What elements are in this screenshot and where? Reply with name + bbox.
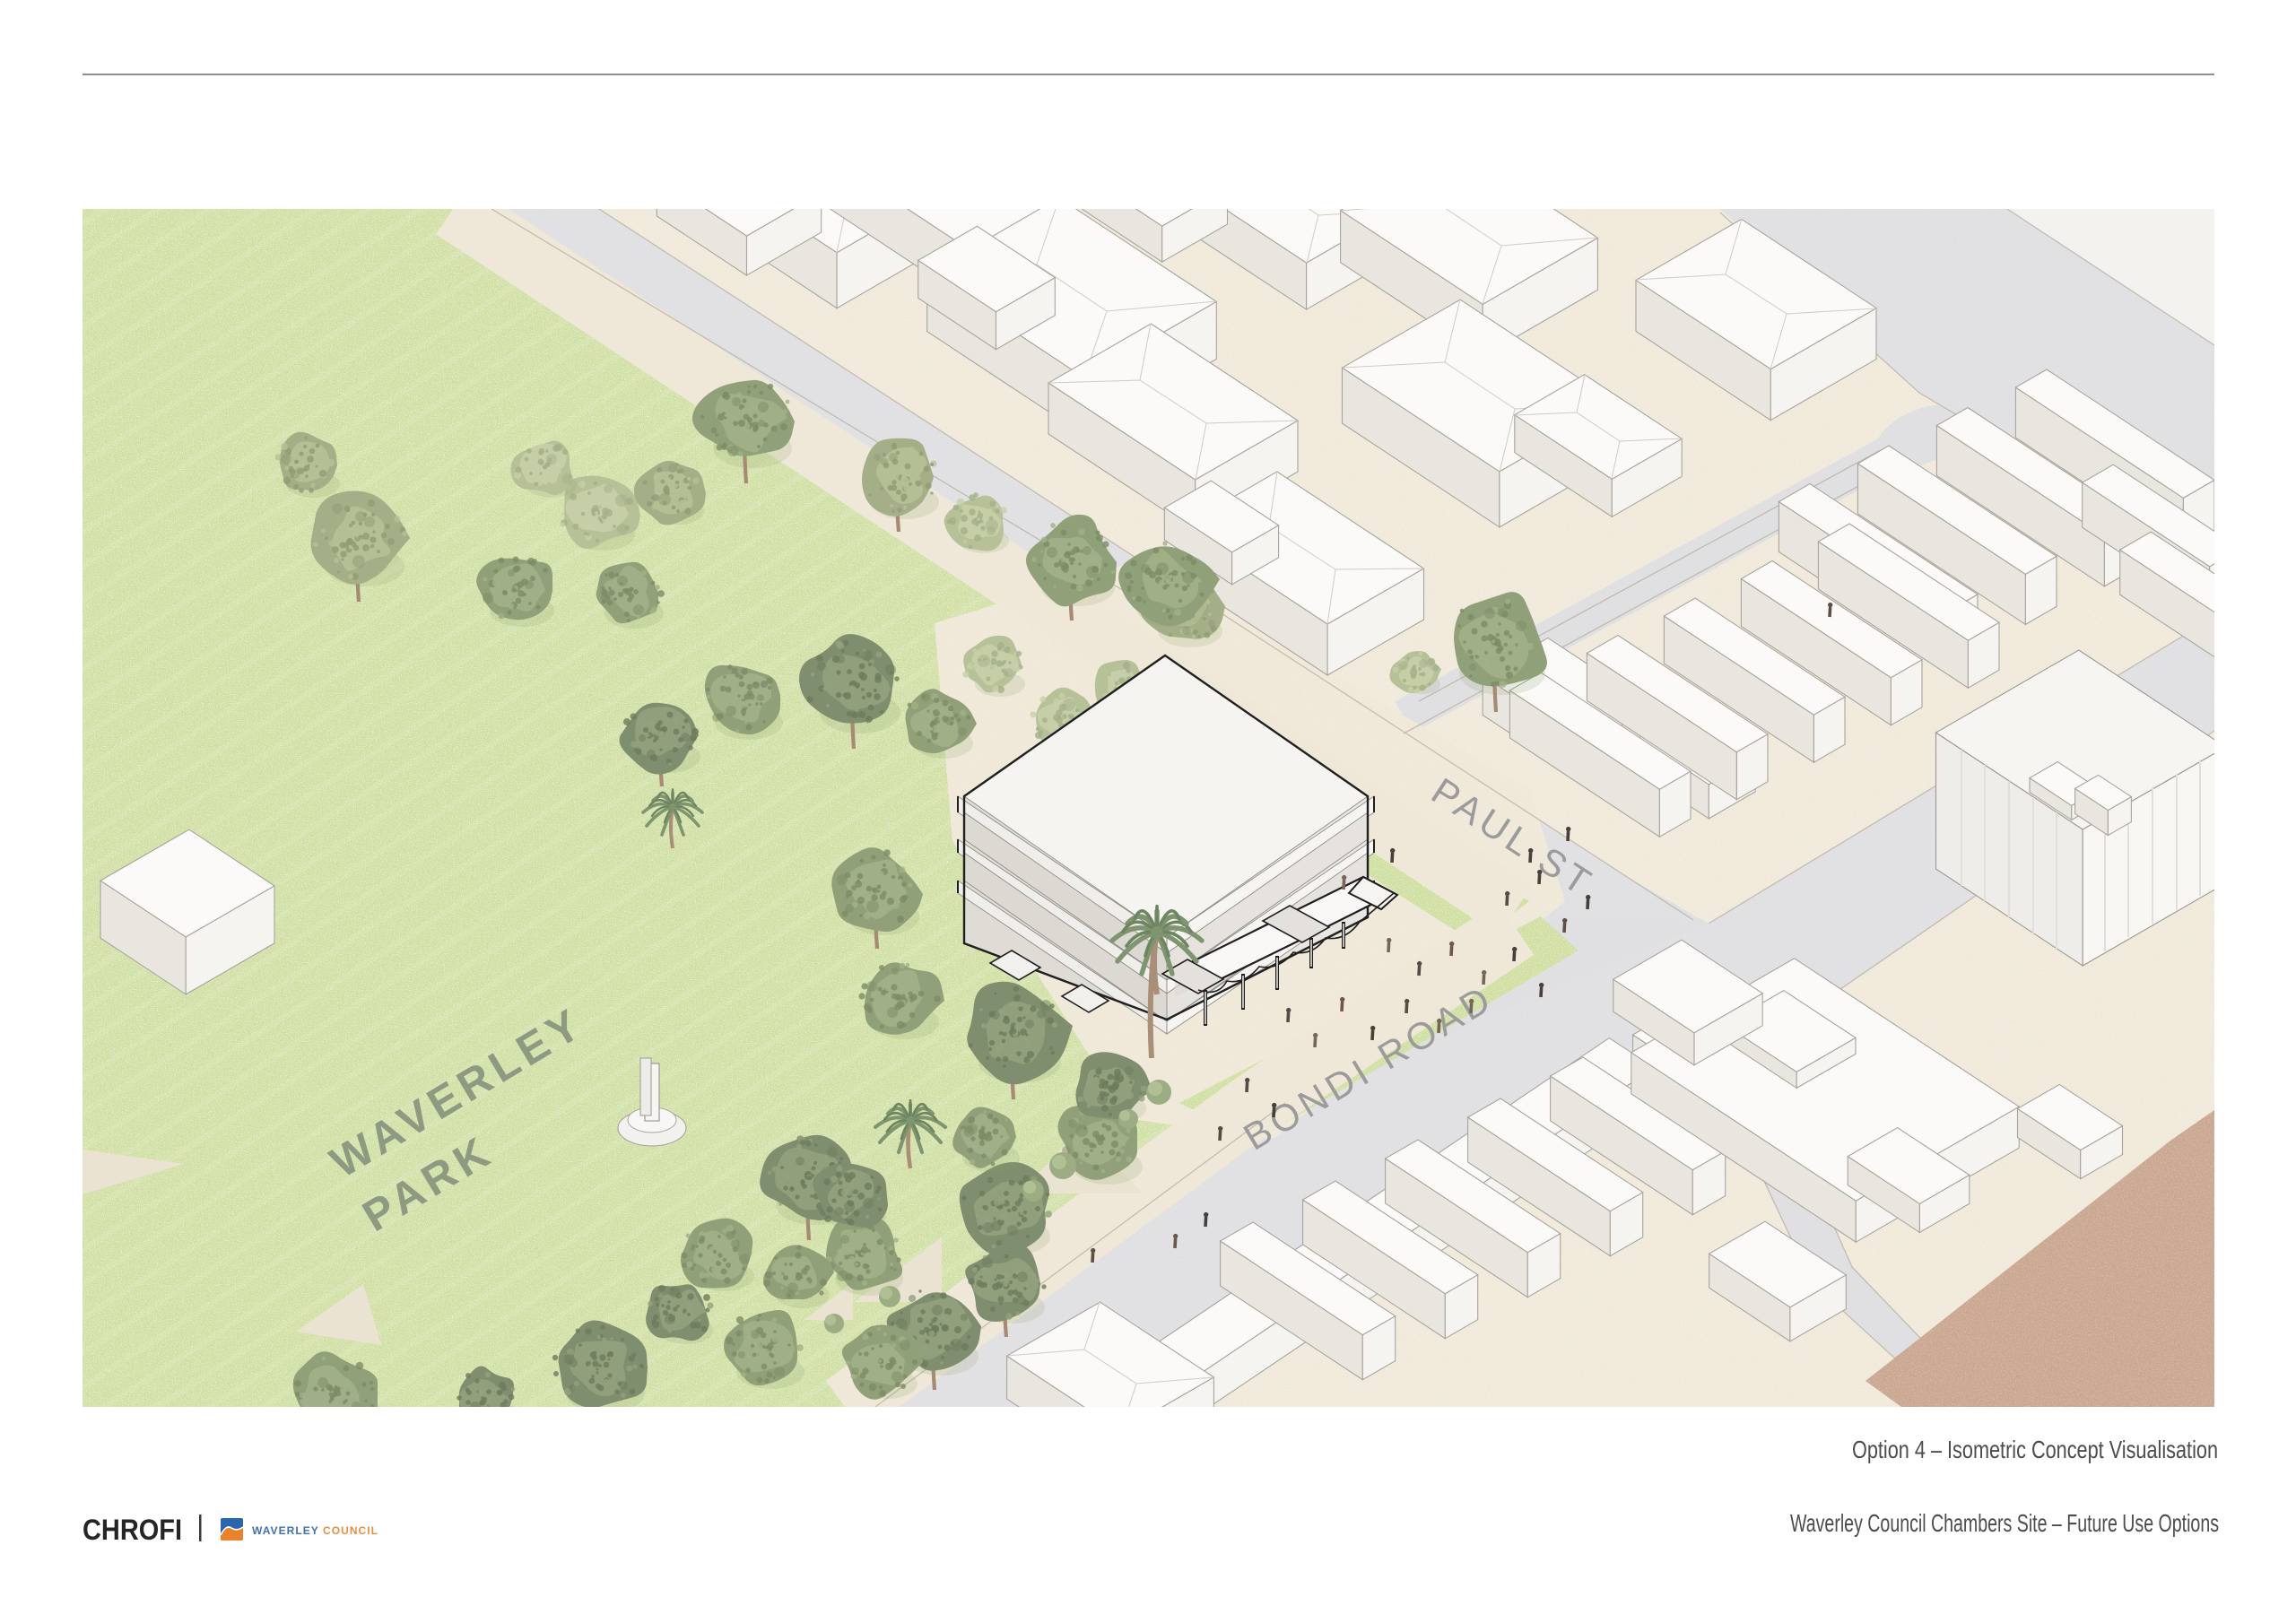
svg-text:CHROFI: CHROFI [83, 1514, 182, 1546]
svg-text:Option 4 – Isometric Concept V: Option 4 – Isometric Concept Visualisati… [1852, 1436, 2218, 1463]
svg-text:WAVERLEY COUNCIL: WAVERLEY COUNCIL [252, 1524, 378, 1537]
svg-text:Waverley Council Chambers Site: Waverley Council Chambers Site – Future … [1790, 1509, 2219, 1537]
